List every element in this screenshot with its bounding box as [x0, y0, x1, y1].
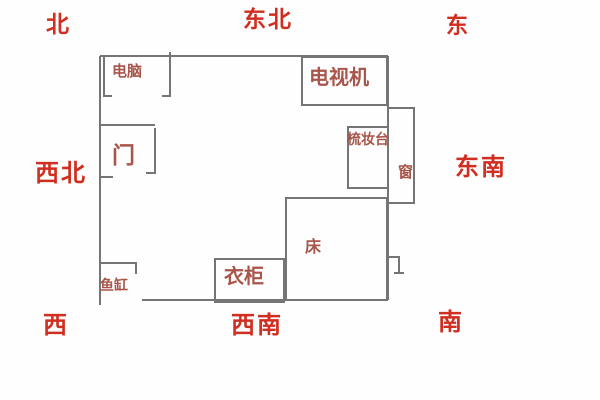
tv-label: 电视机	[309, 68, 369, 88]
compass-label-north: 北	[46, 13, 71, 36]
compass-label-south: 南	[438, 311, 464, 335]
fish-tank-outline	[100, 263, 136, 274]
computer-label: 电脑	[112, 64, 142, 79]
compass-label-southwest: 西南	[231, 314, 283, 338]
bed-label: 床	[305, 240, 321, 256]
dressing-table-label: 梳妆台	[347, 132, 389, 146]
compass-label-west: 西	[43, 314, 69, 338]
compass-label-southeast: 东南	[455, 156, 507, 180]
computer-desk-outline-left	[104, 57, 112, 96]
east-wall-hook	[388, 257, 399, 273]
fish-tank-label: 鱼缸	[100, 278, 128, 292]
computer-desk-outline-right	[162, 52, 170, 96]
door-leaf-line	[146, 128, 155, 173]
door-label: 门	[112, 144, 135, 167]
floorplan-drawing	[0, 0, 600, 400]
bed-box	[286, 198, 387, 300]
floorplan-canvas: 北 东北 东 西北 东南 西 西南 南 电脑 电视机 门 梳妆台 窗 床 衣柜 …	[0, 0, 600, 400]
compass-label-northeast: 东北	[243, 8, 293, 31]
window-bay-outline	[388, 108, 414, 203]
compass-label-east: 东	[446, 15, 470, 37]
window-label: 窗	[398, 165, 413, 180]
compass-label-northwest: 西北	[35, 162, 87, 186]
wardrobe-label: 衣柜	[224, 267, 264, 287]
